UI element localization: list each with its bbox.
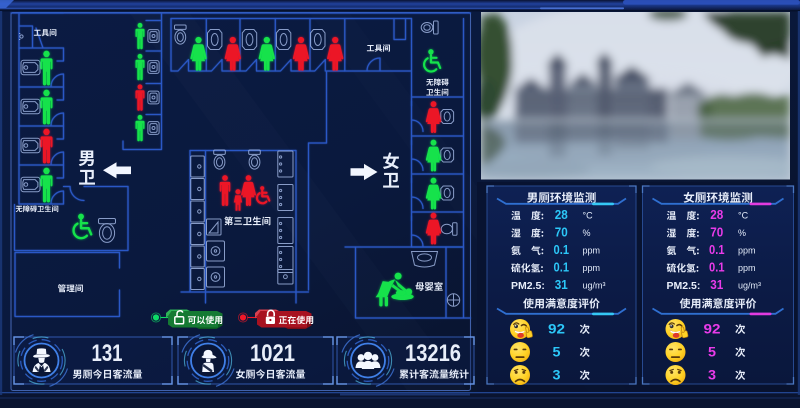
svg-text:ppm: ppm xyxy=(583,263,601,273)
svg-text:92: 92 xyxy=(704,321,721,337)
svg-text:70: 70 xyxy=(710,226,723,240)
svg-text:0.1: 0.1 xyxy=(709,261,725,275)
svg-text:ug/m³: ug/m³ xyxy=(738,281,761,291)
svg-text:%: % xyxy=(583,228,591,238)
svg-text:ppm: ppm xyxy=(738,263,756,273)
svg-text:0.1: 0.1 xyxy=(554,261,570,275)
svg-text:28: 28 xyxy=(710,208,723,222)
svg-text:ppm: ppm xyxy=(583,246,601,256)
svg-text:13216: 13216 xyxy=(405,340,461,367)
svg-text:3: 3 xyxy=(708,367,716,383)
svg-text:5: 5 xyxy=(553,344,561,360)
svg-text:°C: °C xyxy=(583,211,594,221)
svg-text:°C: °C xyxy=(738,211,749,221)
svg-text:PM2.5:: PM2.5: xyxy=(667,280,701,292)
svg-text:31: 31 xyxy=(555,278,568,292)
svg-text:3: 3 xyxy=(553,367,561,383)
svg-text:0.1: 0.1 xyxy=(554,243,570,257)
svg-text:92: 92 xyxy=(548,321,565,337)
svg-text:0.1: 0.1 xyxy=(709,243,725,257)
svg-text:%: % xyxy=(738,228,746,238)
svg-text:5: 5 xyxy=(708,344,716,360)
svg-text:131: 131 xyxy=(92,340,123,367)
svg-text:PM2.5:: PM2.5: xyxy=(511,280,545,292)
svg-text:1021: 1021 xyxy=(250,340,295,367)
svg-text:70: 70 xyxy=(555,226,568,240)
svg-text:28: 28 xyxy=(555,208,568,222)
svg-text:ppm: ppm xyxy=(738,246,756,256)
svg-text:ug/m³: ug/m³ xyxy=(583,281,606,291)
svg-text:31: 31 xyxy=(710,278,723,292)
